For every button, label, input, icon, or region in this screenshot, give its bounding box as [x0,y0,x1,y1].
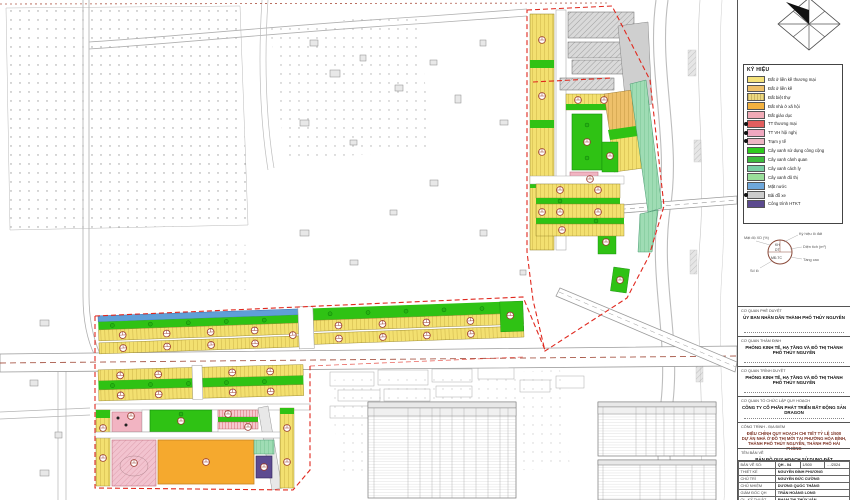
landuse-statistics-table-lower-right [598,460,716,500]
swatch-cx-canh-quan [747,156,765,164]
staff-table: BẢN VẼ SỐ: QH - 04 1/500 …/2024 THIẾT KẾ… [738,461,850,500]
legend-item: Cây xanh cách ly [747,164,840,173]
district-southwest [95,404,310,490]
approval-agency-section: CƠ QUAN PHÊ DUYỆT ỦY BAN NHÂN DÂN THÀNH … [738,306,850,336]
legend-item: Đất biệt thự [747,93,840,102]
appraisal-agency-section: CƠ QUAN THẨM ĐỊNH PHÒNG KINH TẾ, HẠ TẦNG… [738,336,850,366]
swatch-cx-cong-cong [747,147,765,155]
swatch-giao-duc [747,111,765,119]
legend-item: Công trình HTKT [747,199,840,208]
staff-table-section: BẢN VẼ SỐ: QH - 04 1/500 …/2024 THIẾT KẾ… [738,460,850,500]
svg-text:KH: KH [775,243,780,247]
project-name-section: CÔNG TRÌNH - ĐỊA ĐIỂM ĐIỀU CHỈNH QUY HOẠ… [738,422,850,448]
legend-item: Trạm y tế [747,137,840,146]
signature-line [744,388,844,393]
landuse-statistics-table-main [368,402,516,498]
svg-text:DT: DT [775,248,780,252]
legend-item: Đất nhà ở xã hội [747,102,840,111]
signature-line [744,414,844,419]
legend-title: KÝ HIỆU [747,67,840,73]
landuse-statistics-table-upper-right [598,402,716,456]
swatch-lien-ke [747,85,765,93]
lot-symbol-key: KH DT MĐ-TC Ký hiệu lô đất Diện tích (m²… [744,228,844,274]
legend-box: KÝ HIỆU Đất ở liền kề thương mại Đất ở l… [743,64,843,224]
svg-text:Tầng cao: Tầng cao [803,258,819,262]
central-band-row1 [98,299,524,356]
svg-text:Ký hiệu lô đất: Ký hiệu lô đất [799,232,823,236]
road-northeast [610,196,737,214]
legend-item: Cây xanh đô thị [747,173,840,182]
legend-item: TT thương mại [747,119,840,128]
legend-item: Đất giáo dục [747,111,840,120]
swatch-tt-vh [747,129,765,137]
title-block: CƠ QUAN PHÊ DUYỆT ỦY BAN NHÂN DÂN THÀNH … [738,306,850,500]
swatch-nha-o-xa-hoi [747,102,765,110]
master-plan-sheet: { "document": { "type": "urban planning … [0,0,850,500]
swatch-htkt [747,200,765,208]
legend-item: TT VH hội nghị [747,128,840,137]
legend-item: Đất ở liền kề thương mại [747,75,840,84]
legend-item: Mặt nước [747,182,840,191]
drawing-name-section: TÊN BẢN VẼ BẢN ĐỒ QUY HOẠCH SỬ DỤNG ĐẤT [738,448,850,460]
svg-text:MĐ-TC: MĐ-TC [771,256,782,260]
swatch-bai-do-xe [747,191,765,199]
swatch-lien-ke-thuong-mai [747,76,765,84]
swatch-biet-thu [747,93,765,101]
power-line [0,3,610,4]
legend-item: Cây xanh sử dụng công cộng [747,146,840,155]
signature-line [744,328,844,333]
swatch-tt-thuong-mai [747,120,765,128]
legend-item: Đất ở liền kề [747,84,840,93]
svg-text:Diện tích (m²): Diện tích (m²) [803,245,827,249]
swatch-mat-nuoc [747,182,765,190]
legend-item: Bãi đỗ xe [747,191,840,200]
submitting-agency-section: CƠ QUAN TRÌNH DUYỆT PHÒNG KINH TẾ, HẠ TẦ… [738,366,850,396]
swatch-cx-cach-ly [747,165,765,173]
signature-line [744,358,844,363]
svg-text:Mật độ XD (%): Mật độ XD (%) [744,236,770,240]
district-northeast [530,10,662,293]
legend-item: Cây xanh cảnh quan [747,155,840,164]
swatch-cx-do-thi [747,173,765,181]
north-arrow-icon [776,0,846,56]
svg-text:Số lô: Số lô [750,269,759,273]
plan-map-canvas [0,0,850,500]
sheet-info-panel: KÝ HIỆU Đất ở liền kề thương mại Đất ở l… [737,0,850,500]
planning-organizer-section: CƠ QUAN TỔ CHỨC LẬP QUY HOẠCH CÔNG TY CỔ… [738,396,850,422]
swatch-tram-y-te [747,138,765,146]
